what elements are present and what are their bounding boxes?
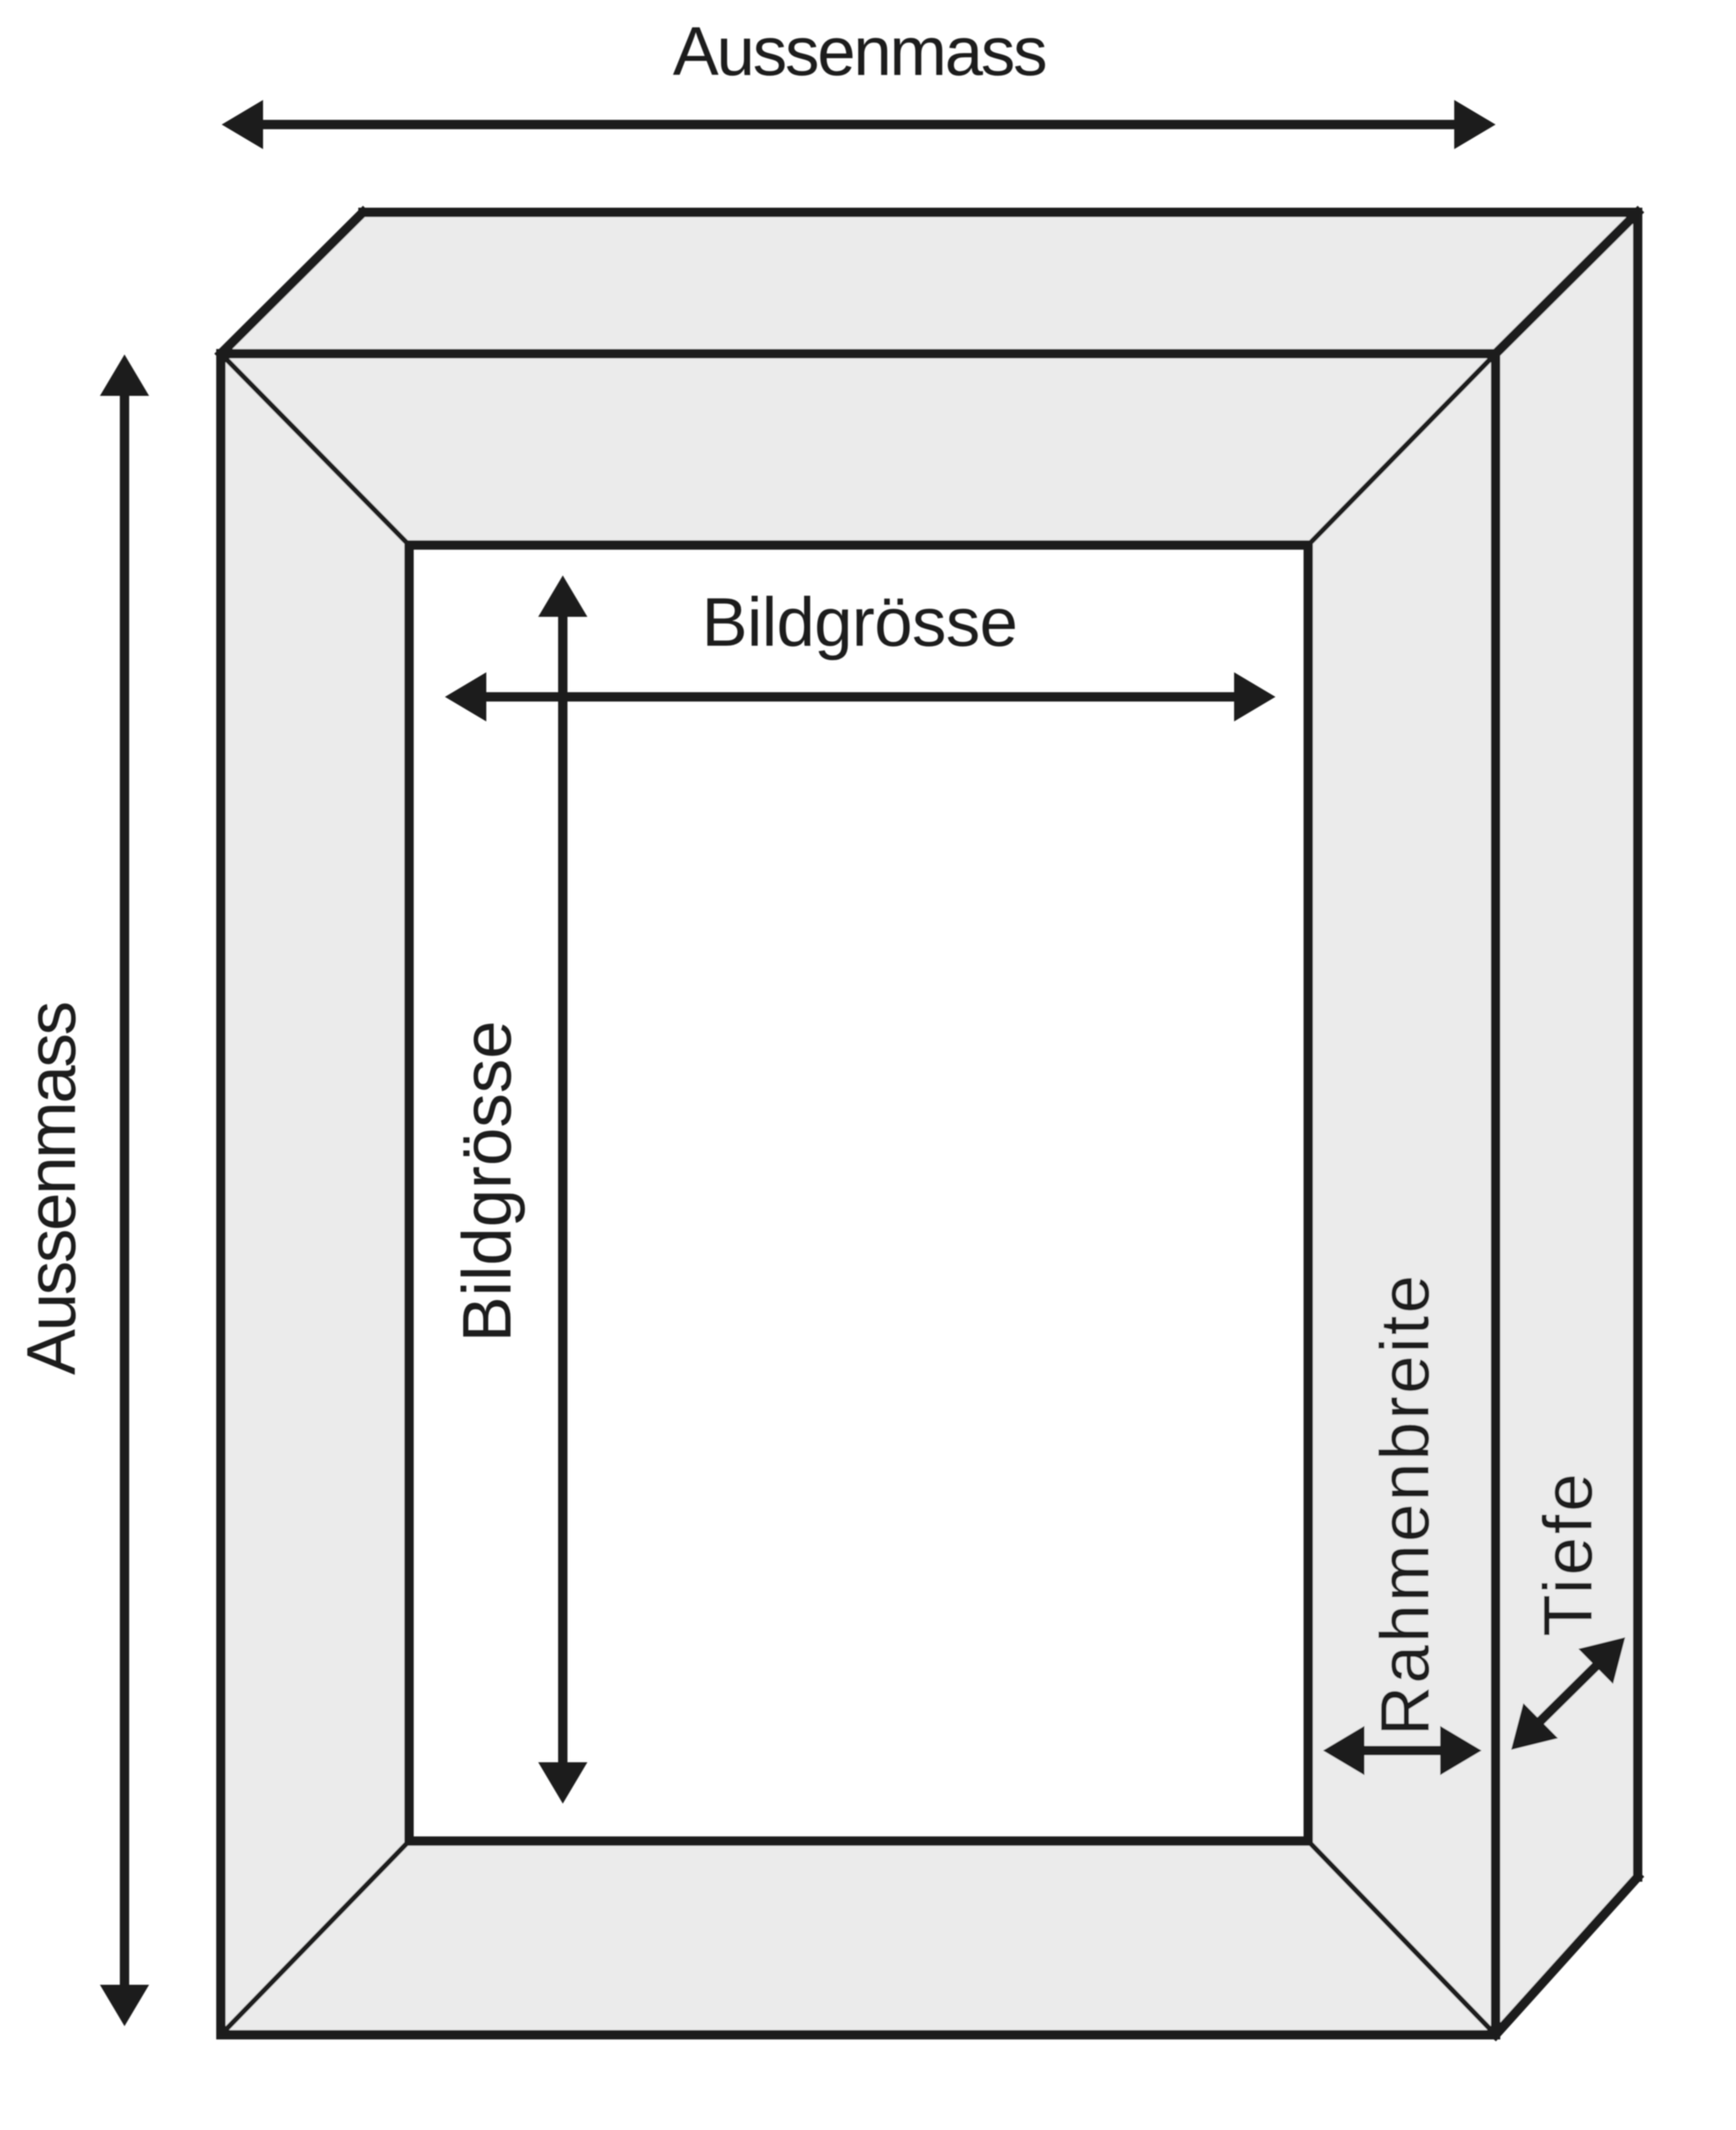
svg-text:Aussenmass: Aussenmass	[673, 12, 1048, 90]
svg-text:Rahmenbreite: Rahmenbreite	[1366, 1275, 1443, 1736]
svg-text:Aussenmass: Aussenmass	[12, 1001, 90, 1375]
svg-text:Bildgrösse: Bildgrösse	[702, 583, 1018, 661]
svg-text:Bildgrösse: Bildgrösse	[448, 1020, 525, 1342]
svg-text:Tiefe: Tiefe	[1529, 1473, 1606, 1637]
